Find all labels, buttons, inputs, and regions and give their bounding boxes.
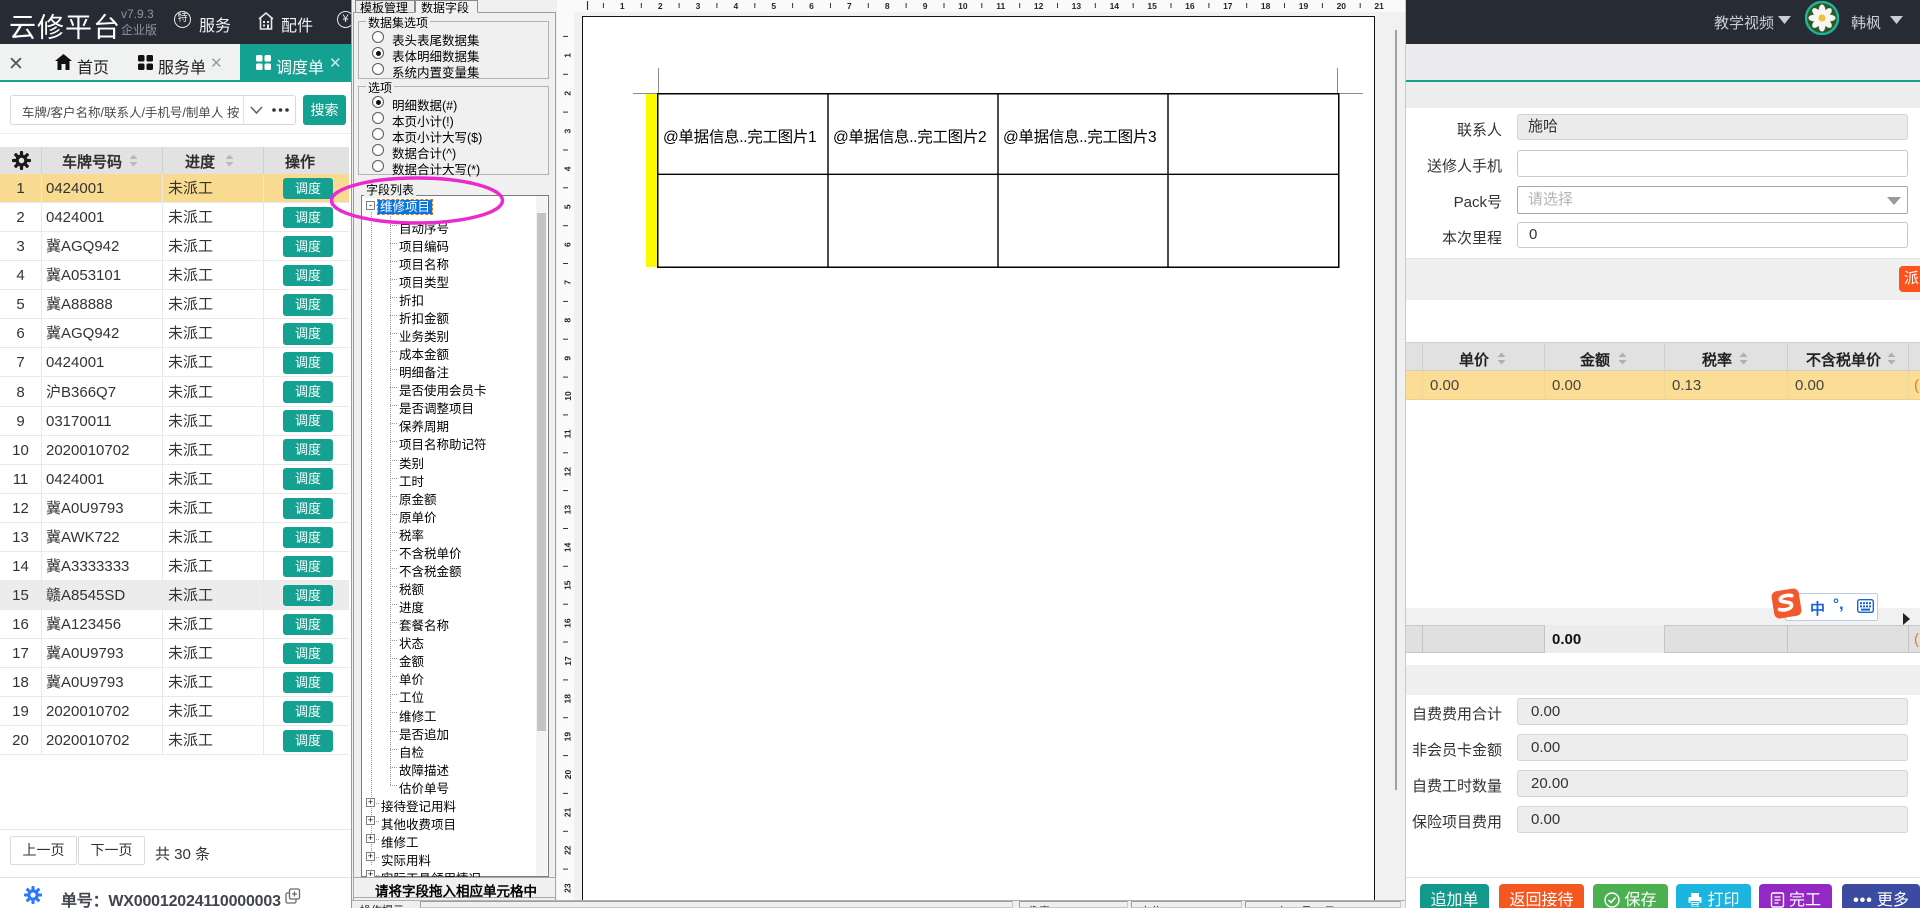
svg-text:14: 14 [1110,1,1120,11]
svg-text:19: 19 [1299,1,1309,11]
svg-text:15: 15 [563,580,573,590]
svg-text:17: 17 [1223,1,1233,11]
svg-text:22: 22 [563,845,573,855]
svg-text:3: 3 [696,1,701,11]
svg-text:11: 11 [563,429,573,438]
svg-text:1: 1 [563,53,573,58]
svg-text:12: 12 [563,467,573,477]
svg-text:18: 18 [563,694,573,704]
svg-text:15: 15 [1147,1,1157,11]
svg-text:6: 6 [563,242,573,247]
svg-text:11: 11 [996,1,1005,11]
svg-text:23: 23 [563,883,573,893]
svg-text:4: 4 [734,1,739,11]
svg-text:13: 13 [563,505,573,515]
svg-text:20: 20 [1337,1,1347,11]
svg-text:14: 14 [563,542,573,552]
svg-text:13: 13 [1072,1,1082,11]
svg-text:16: 16 [1185,1,1195,11]
svg-text:21: 21 [1374,1,1384,11]
svg-text:2: 2 [563,91,573,96]
svg-text:18: 18 [1261,1,1271,11]
svg-text:9: 9 [563,356,573,361]
svg-text:7: 7 [847,1,852,11]
svg-text:12: 12 [1034,1,1044,11]
svg-text:9: 9 [923,1,928,11]
svg-text:19: 19 [563,732,573,742]
svg-text:21: 21 [563,807,573,817]
svg-text:16: 16 [563,618,573,628]
svg-text:7: 7 [563,280,573,285]
svg-text:8: 8 [885,1,890,11]
svg-text:10: 10 [958,1,968,11]
svg-text:2: 2 [658,1,663,11]
svg-text:17: 17 [563,656,573,666]
svg-text:10: 10 [563,391,573,401]
svg-text:4: 4 [563,166,573,171]
svg-text:5: 5 [563,204,573,209]
svg-text:20: 20 [563,770,573,780]
svg-text:1: 1 [620,1,625,11]
svg-text:3: 3 [563,128,573,133]
svg-text:6: 6 [809,1,814,11]
svg-text:5: 5 [771,1,776,11]
svg-text:8: 8 [563,318,573,323]
